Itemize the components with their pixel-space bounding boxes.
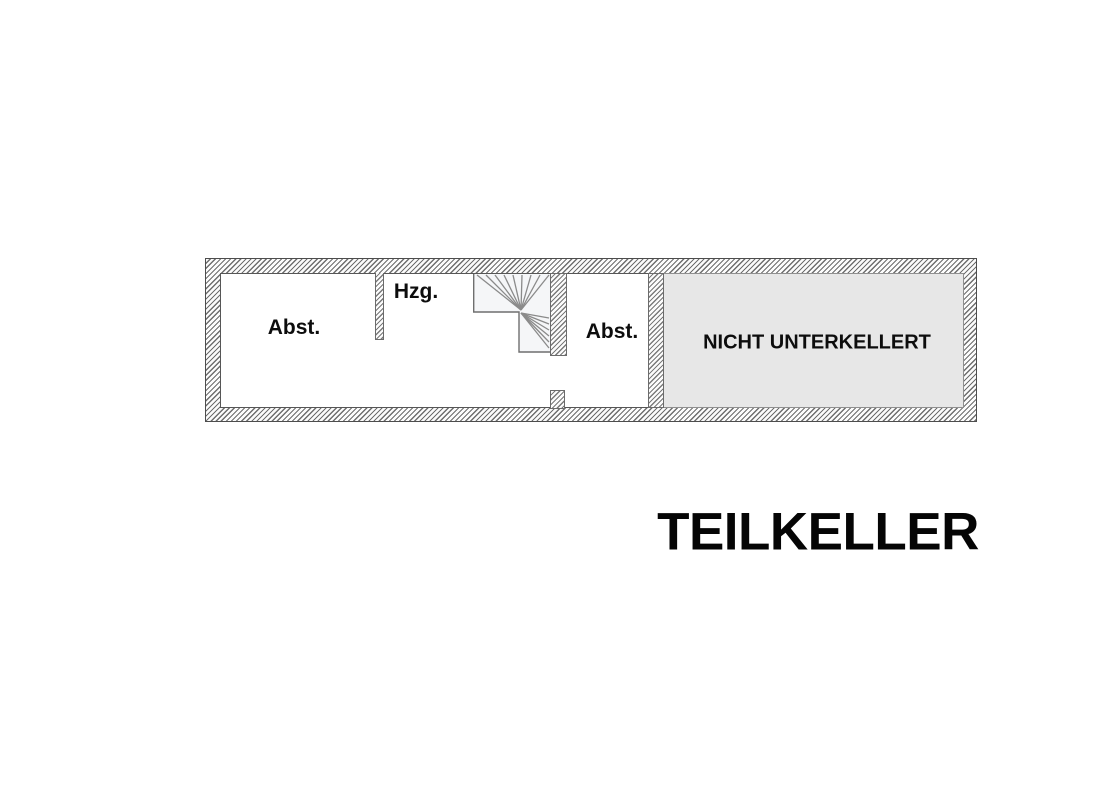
zone-label-nicht-unterkellert: NICHT UNTERKELLERT [703,332,931,355]
wall-between-abst-and-no-basement [648,273,664,408]
wall-door-stub [550,390,565,409]
wall-partial-abst [375,273,384,340]
floor-plan-page: Abst. Hzg. Abst. NICHT UNTERKELLERT TEIL… [0,0,1104,803]
wall-stairwell [550,273,567,356]
room-label-hzg: Hzg. [394,280,438,304]
floor-plan-outline: Abst. Hzg. Abst. NICHT UNTERKELLERT [205,258,977,422]
room-label-abst-right: Abst. [586,320,639,344]
winder-staircase-icon [473,274,551,353]
page-title: TEILKELLER [657,502,979,563]
room-label-abst-left: Abst. [268,316,321,340]
